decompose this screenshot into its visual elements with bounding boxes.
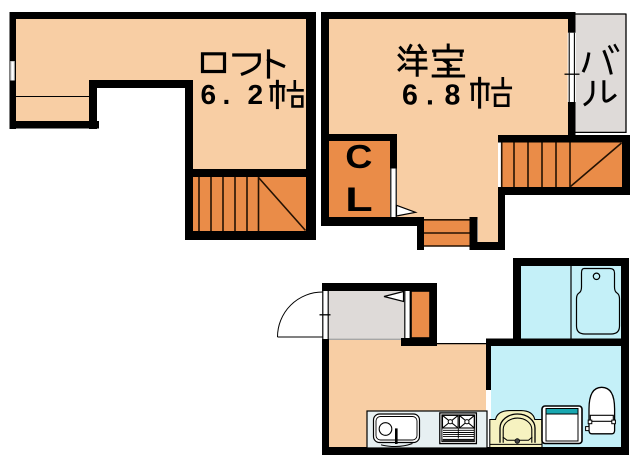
- svg-text:.: .: [426, 80, 434, 112]
- svg-text:L: L: [345, 181, 372, 219]
- svg-text:2: 2: [248, 79, 264, 110]
- svg-text:8: 8: [445, 80, 461, 112]
- svg-text:C: C: [345, 139, 372, 175]
- svg-text:6: 6: [402, 80, 418, 112]
- svg-text:.: .: [223, 79, 231, 110]
- svg-text:6: 6: [201, 79, 217, 110]
